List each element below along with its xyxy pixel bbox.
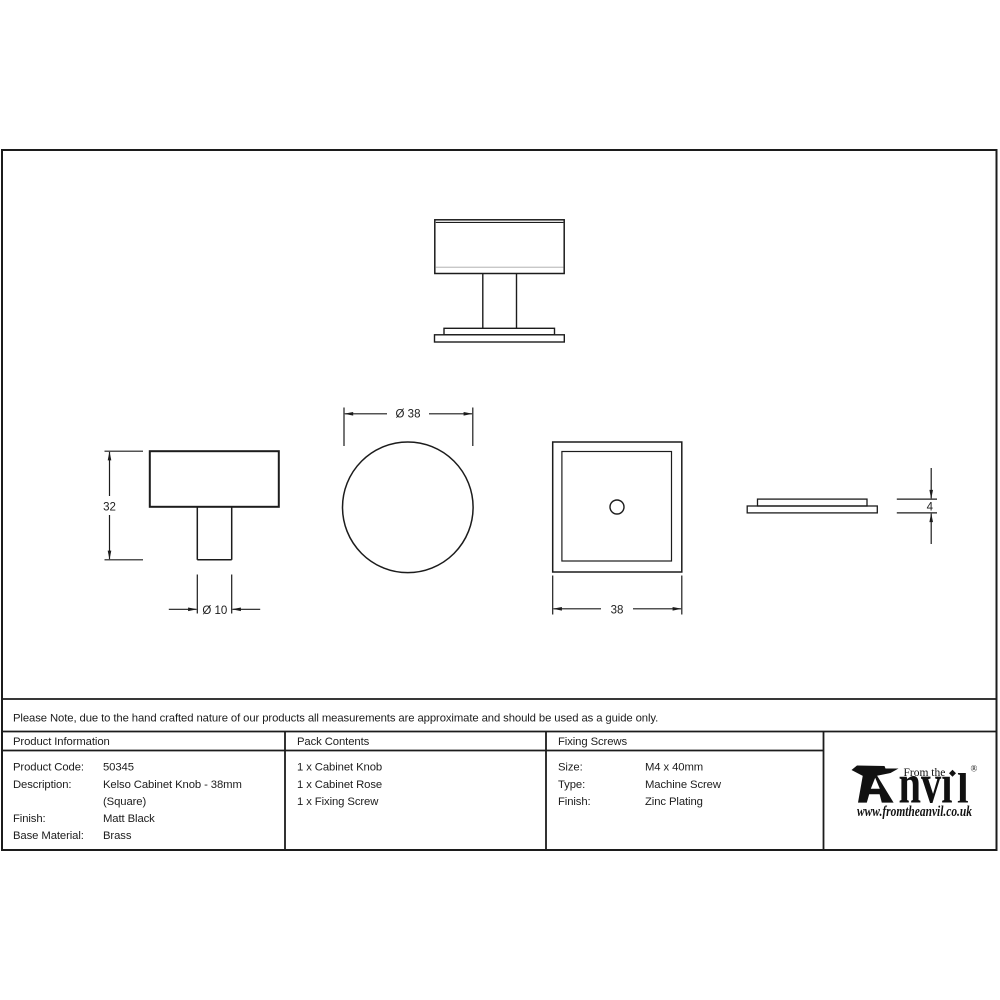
svg-text:38: 38 [611, 604, 624, 616]
svg-text:Brass: Brass [103, 830, 132, 842]
svg-text:(Square): (Square) [103, 796, 146, 808]
svg-text:Description:: Description: [13, 779, 71, 791]
svg-text:Finish:: Finish: [13, 813, 46, 825]
svg-text:Size:: Size: [558, 761, 583, 773]
svg-text:Kelso Cabinet Knob - 38mm: Kelso Cabinet Knob - 38mm [103, 779, 242, 791]
svg-text:Zinc Plating: Zinc Plating [645, 796, 703, 808]
svg-text:Product Information: Product Information [13, 736, 110, 748]
svg-text:Please Note, due to the hand c: Please Note, due to the hand crafted nat… [13, 713, 658, 725]
svg-text:Product Code:: Product Code: [13, 761, 84, 773]
svg-text:www.fromtheanvil.co.uk: www.fromtheanvil.co.uk [857, 804, 973, 820]
svg-text:Fixing Screws: Fixing Screws [558, 736, 627, 748]
svg-text:50345: 50345 [103, 761, 134, 773]
svg-text:1 x Fixing Screw: 1 x Fixing Screw [297, 796, 379, 808]
svg-text:Type:: Type: [558, 779, 585, 791]
svg-text:Pack Contents: Pack Contents [297, 736, 370, 748]
svg-text:M4 x 40mm: M4 x 40mm [645, 761, 703, 773]
svg-text:1 x Cabinet Rose: 1 x Cabinet Rose [297, 779, 382, 791]
svg-text:®: ® [971, 764, 978, 774]
svg-text:Machine Screw: Machine Screw [645, 779, 722, 791]
svg-text:4: 4 [927, 502, 934, 514]
svg-text:Base Material:: Base Material: [13, 830, 84, 842]
svg-text:Matt Black: Matt Black [103, 813, 155, 825]
svg-text:1 x Cabinet Knob: 1 x Cabinet Knob [297, 761, 382, 773]
svg-text:Finish:: Finish: [558, 796, 591, 808]
svg-text:Ø 38: Ø 38 [396, 409, 421, 421]
svg-text:Ø 10: Ø 10 [202, 605, 227, 617]
svg-text:32: 32 [103, 501, 116, 513]
